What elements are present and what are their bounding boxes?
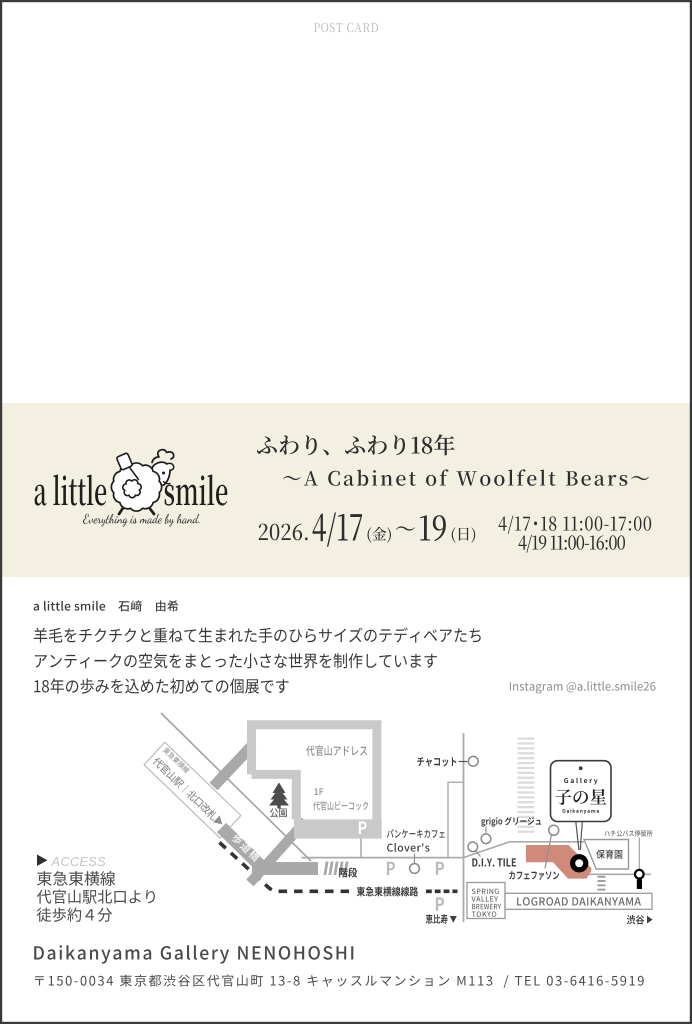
svg-text:ACCESS: ACCESS <box>51 854 107 869</box>
